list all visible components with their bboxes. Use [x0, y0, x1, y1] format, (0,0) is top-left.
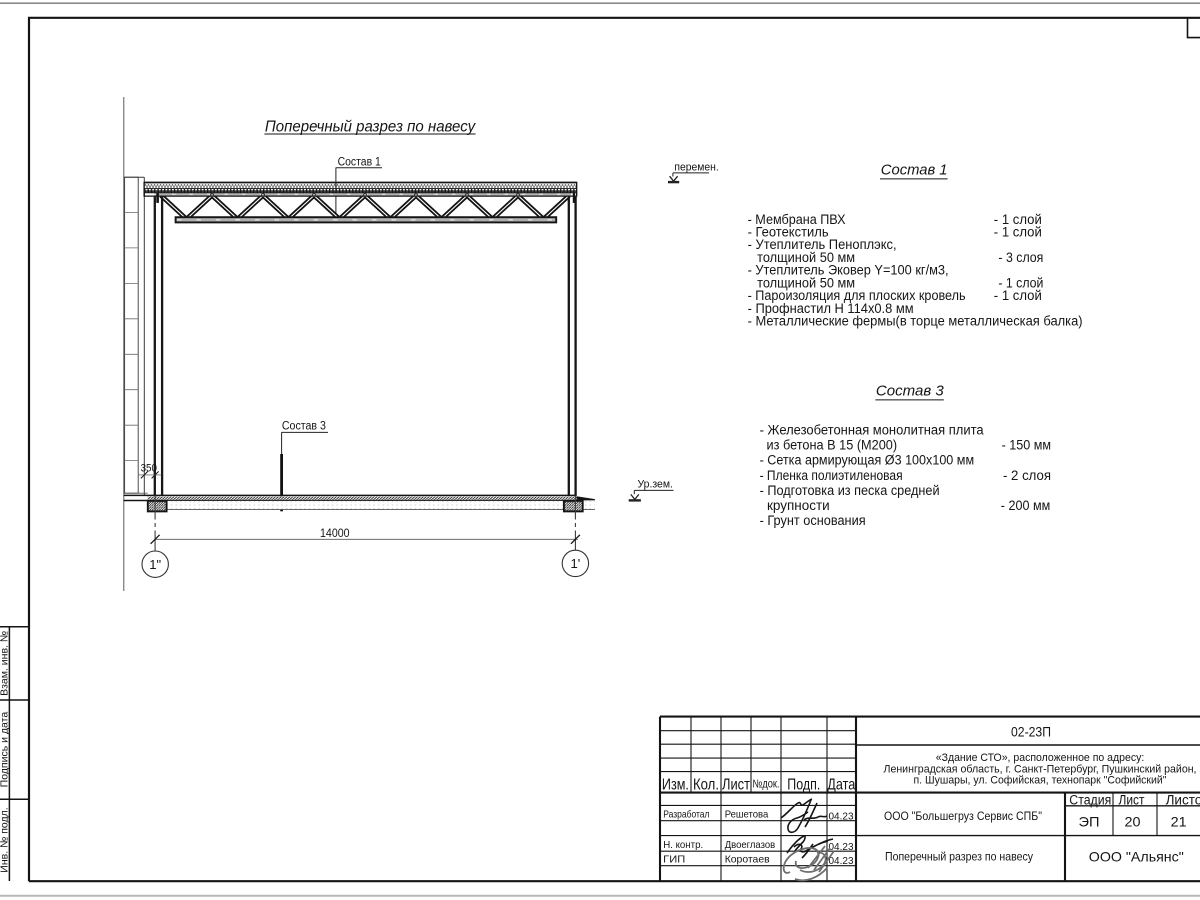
svg-text:Решетова: Решетова: [725, 808, 769, 820]
svg-text:14000: 14000: [320, 528, 350, 540]
svg-text:«Здание СТО», расположенное по: «Здание СТО», расположенное по адресу:: [936, 752, 1145, 764]
svg-text:- 1 слой: - 1 слой: [994, 225, 1042, 240]
svg-text:Состав 1: Состав 1: [338, 156, 381, 168]
svg-text:- Грунт основания: - Грунт основания: [760, 513, 866, 528]
svg-text:ГИП: ГИП: [663, 853, 685, 865]
svg-text:Н. контр.: Н. контр.: [663, 839, 703, 851]
svg-text:Ур.зем.: Ур.зем.: [638, 478, 673, 490]
svg-text:Подпись и дата: Подпись и дата: [0, 712, 11, 788]
svg-text:Состав 3: Состав 3: [282, 421, 326, 433]
svg-text:02-23П: 02-23П: [1011, 723, 1051, 739]
svg-text:Поперечный разрез по навесу: Поперечный разрез по навесу: [885, 849, 1033, 863]
svg-text:1': 1': [571, 556, 581, 571]
svg-text:Изм.: Изм.: [662, 776, 689, 793]
svg-text:Инв. № подл.: Инв. № подл.: [0, 807, 11, 872]
svg-text:ЭП: ЭП: [1079, 814, 1100, 830]
svg-text:п. Шушары, ул. Софийская, техн: п. Шушары, ул. Софийская, технопарк "Соф…: [914, 775, 1167, 787]
svg-text:Взам. инв. №: Взам. инв. №: [0, 631, 11, 696]
svg-text:из бетона В 15 (М200): из бетона В 15 (М200): [767, 438, 898, 453]
svg-text:Стадия: Стадия: [1069, 792, 1111, 807]
svg-text:Подп.: Подп.: [787, 776, 820, 793]
svg-text:350: 350: [141, 463, 157, 475]
svg-text:- 150 мм: - 150 мм: [1002, 438, 1052, 453]
svg-text:- Железобетонная монолитная п: - Железобетонная монолитная плита: [760, 422, 984, 437]
svg-text:- Подготовка из песка средней: - Подготовка из песка средней: [760, 483, 940, 498]
svg-text:20: 20: [1125, 814, 1141, 830]
svg-text:- Пленка полиэтиленовая: - Пленка полиэтиленовая: [760, 468, 903, 483]
svg-text:Поперечный разрез по навесу: Поперечный разрез по навесу: [265, 118, 476, 135]
svg-text:04.23: 04.23: [829, 855, 854, 867]
svg-text:крупности: крупности: [767, 498, 830, 513]
svg-text:Лист: Лист: [722, 776, 751, 793]
svg-text:- 3 слоя: - 3 слоя: [998, 250, 1043, 265]
svg-text:Состав 3: Состав 3: [876, 383, 944, 400]
svg-text:- 2 слоя: - 2 слоя: [1003, 468, 1051, 483]
svg-text:Двоеглазов: Двоеглазов: [725, 839, 776, 851]
svg-text:21: 21: [1171, 814, 1187, 830]
svg-text:04.23: 04.23: [829, 811, 854, 823]
svg-text:1": 1": [149, 557, 161, 572]
svg-text:Дата: Дата: [827, 776, 855, 793]
svg-text:Лист: Лист: [1119, 792, 1145, 807]
svg-text:- Сетка армирующая Ø3 100х100: - Сетка армирующая Ø3 100х100 мм: [760, 453, 975, 468]
svg-text:Коротаев: Коротаев: [725, 853, 770, 865]
svg-text:перемен.: перемен.: [674, 162, 718, 174]
svg-text:Разработал: Разработал: [663, 808, 709, 820]
svg-text:- 1 слой: - 1 слой: [994, 288, 1042, 303]
svg-text:- 200 мм: - 200 мм: [1001, 498, 1051, 513]
svg-text:Кол.: Кол.: [693, 776, 719, 793]
svg-text:- Металлические фермы(в торце: - Металлические фермы(в торце металличес…: [748, 314, 1083, 329]
svg-text:04.23: 04.23: [829, 841, 854, 853]
svg-text:Листов: Листов: [1166, 792, 1200, 807]
svg-text:ООО "Альянс": ООО "Альянс": [1089, 849, 1184, 865]
svg-text:ООО "Большегруз Сервис СПБ": ООО "Большегруз Сервис СПБ": [884, 809, 1042, 823]
svg-text:Состав 1: Состав 1: [881, 162, 948, 179]
svg-text:№док.: №док.: [753, 779, 780, 791]
